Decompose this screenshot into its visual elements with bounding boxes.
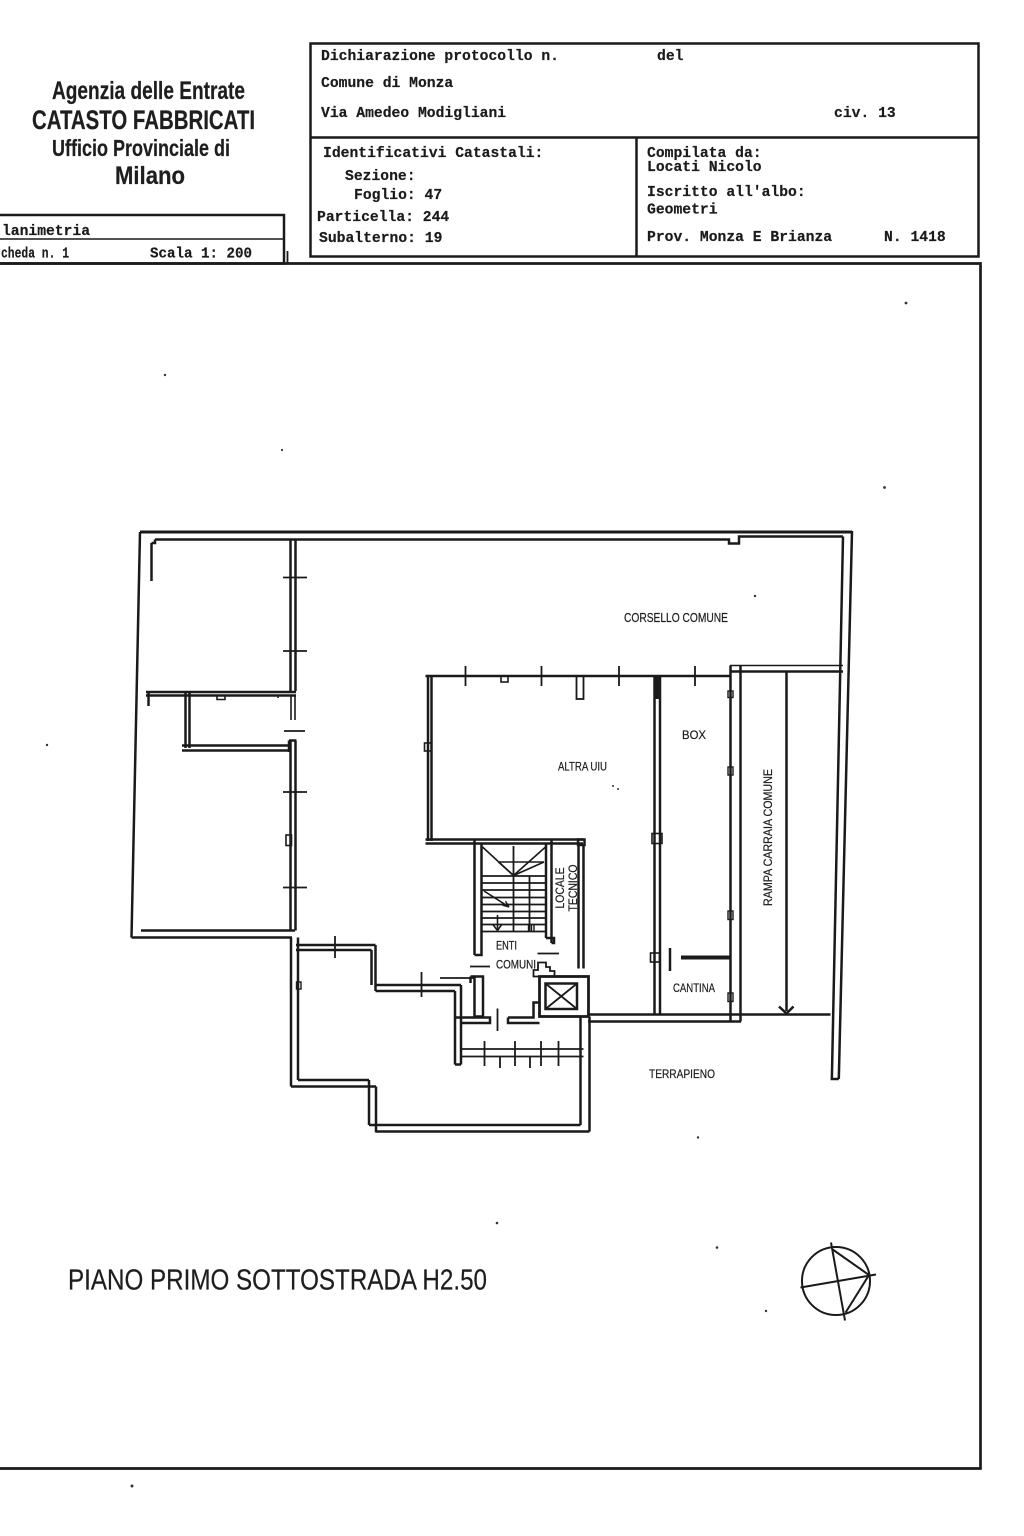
svg-text:CORSELLO COMUNE: CORSELLO COMUNE <box>624 611 728 625</box>
svg-text:civ. 13: civ. 13 <box>834 106 896 122</box>
svg-text:COMUNI: COMUNI <box>496 960 536 972</box>
svg-text:Locati Nicolo: Locati Nicolo <box>647 160 762 176</box>
svg-text:ENTI: ENTI <box>496 941 517 953</box>
svg-text:TERRAPIENO: TERRAPIENO <box>649 1067 715 1081</box>
svg-text:LOCALE: LOCALE <box>555 867 567 908</box>
svg-text:TECNICO: TECNICO <box>568 864 580 911</box>
svg-text:Dichiarazione protocollo n.: Dichiarazione protocollo n. <box>321 49 559 65</box>
svg-text:cheda n. 1: cheda n. 1 <box>1 246 69 263</box>
svg-text:CANTINA: CANTINA <box>673 981 715 995</box>
svg-text:Ufficio Provinciale di: Ufficio Provinciale di <box>52 135 230 161</box>
svg-text:Milano: Milano <box>115 162 185 190</box>
svg-text:Via Amedeo Modigliani: Via Amedeo Modigliani <box>321 106 506 122</box>
svg-text:Agenzia delle Entrate: Agenzia delle Entrate <box>52 77 245 105</box>
svg-text:del: del <box>657 49 684 65</box>
svg-text:Scala 1: 200: Scala 1: 200 <box>150 246 252 263</box>
svg-text:Foglio: 47: Foglio: 47 <box>354 188 442 204</box>
svg-text:Sezione:: Sezione: <box>345 169 416 185</box>
svg-text:Prov. Monza E Brianza: Prov. Monza E Brianza <box>647 230 832 246</box>
svg-text:Subalterno: 19: Subalterno: 19 <box>319 231 442 247</box>
svg-text:RAMPA CARRAIA COMUNE: RAMPA CARRAIA COMUNE <box>761 769 775 906</box>
svg-text:Particella: 244: Particella: 244 <box>317 210 449 226</box>
svg-text:Iscritto all'albo:: Iscritto all'albo: <box>647 185 806 201</box>
svg-text:CATASTO FABBRICATI: CATASTO FABBRICATI <box>32 105 255 135</box>
svg-text:ALTRA UIU: ALTRA UIU <box>558 760 607 774</box>
svg-text:Geometri: Geometri <box>647 203 718 219</box>
svg-text:PIANO PRIMO SOTTOSTRADA H2.50: PIANO PRIMO SOTTOSTRADA H2.50 <box>68 1265 487 1297</box>
svg-text:lanimetria: lanimetria <box>2 223 90 240</box>
svg-text:Comune di Monza: Comune di Monza <box>321 76 453 92</box>
svg-text:Identificativi Catastali:: Identificativi Catastali: <box>323 146 543 162</box>
svg-text:N. 1418: N. 1418 <box>884 230 946 246</box>
svg-text:BOX: BOX <box>682 728 706 742</box>
